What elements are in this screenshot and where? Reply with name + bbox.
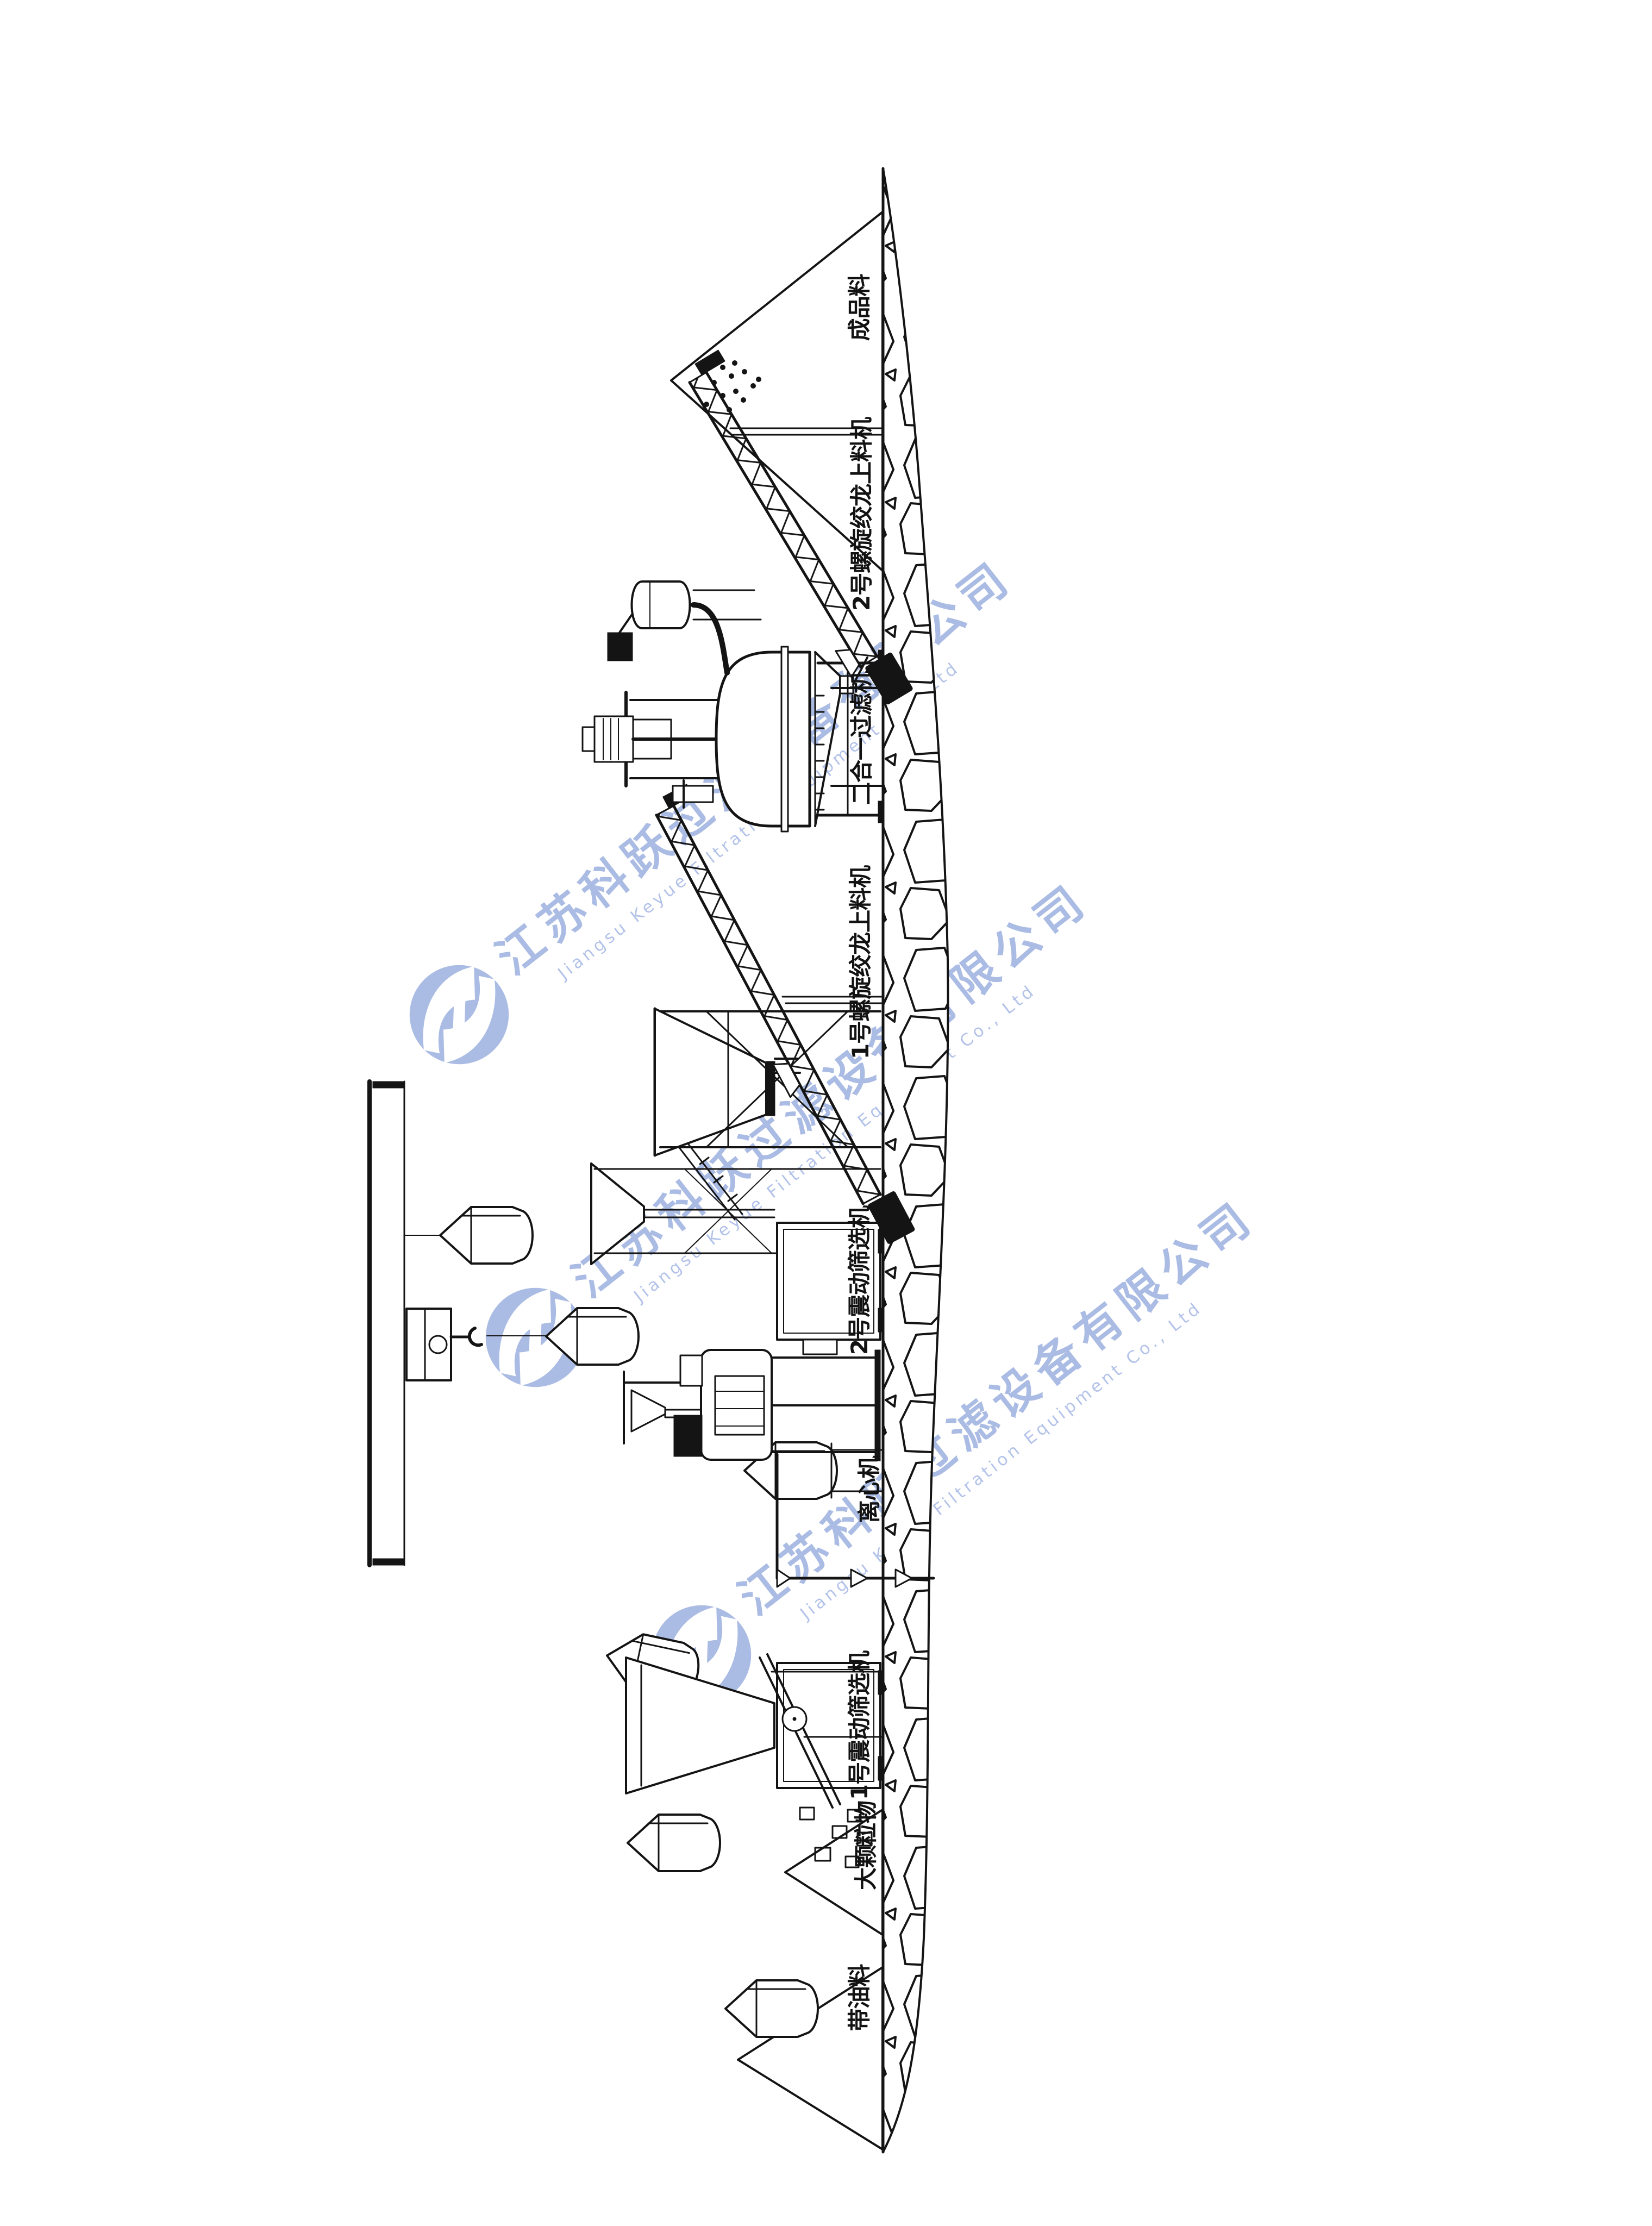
monorail-beam xyxy=(370,1081,404,1565)
vessel-shell xyxy=(716,652,810,826)
stone-band xyxy=(883,168,948,2152)
rotated-drawing-stage: 成品料 2号螺旋绞龙上料机 二合一过滤机 1号螺旋绞龙上料机 2号震动筛选机 离… xyxy=(0,0,1652,2226)
charge-bucket xyxy=(628,1815,720,1871)
centrifuge xyxy=(624,1350,880,1461)
filter-vessel xyxy=(583,647,883,831)
label-oily-pile: 带油料 xyxy=(846,1964,873,2031)
label-centrifuge: 离心机 xyxy=(856,1456,883,1523)
label-filter: 二合一过滤机 xyxy=(848,671,875,805)
label-finished-pile: 成品料 xyxy=(846,274,873,341)
screen2-vibrator-motor xyxy=(803,1340,837,1354)
vessel-flange xyxy=(781,647,788,831)
label-screen-1: 1号震动筛选机 xyxy=(846,1650,873,1800)
vacuum-pump xyxy=(608,633,633,661)
charge-bucket xyxy=(546,1308,639,1365)
hoist-hook xyxy=(470,1328,481,1345)
centrifuge-motor xyxy=(674,1415,702,1456)
electric-hoist xyxy=(406,1309,547,1380)
process-flow-drawing: 成品料 2号螺旋绞龙上料机 二合一过滤机 1号螺旋绞龙上料机 2号震动筛选机 离… xyxy=(0,0,1652,2226)
centrifuge-feed-cone xyxy=(631,1390,665,1431)
vacuum-hose xyxy=(693,605,727,673)
vessel-cone-bottom xyxy=(815,652,840,826)
label-screen-2: 2号震动筛选机 xyxy=(846,1205,873,1355)
charge-bucket xyxy=(440,1207,533,1264)
agitator-motor xyxy=(595,716,633,762)
label-screw-feeder-1: 1号螺旋绞龙上料机 xyxy=(847,865,874,1059)
vacuum-tank xyxy=(608,581,761,673)
ground-profile xyxy=(883,168,948,2152)
process-flow-screenshot: { "watermark": { "cn": "江苏科跃过滤设备有限公司", "… xyxy=(0,0,1652,2226)
screen1-feed-hopper xyxy=(626,1658,774,1793)
flow-arrow-icon xyxy=(851,1570,867,1587)
screw-feeder-1 xyxy=(638,784,922,1253)
charge-bucket xyxy=(725,1980,818,2037)
label-screw-feeder-2: 2号螺旋绞龙上料机 xyxy=(848,417,875,611)
label-coarse-pile: 大颗粒物 xyxy=(853,1801,879,1890)
filter-feed-pipe xyxy=(673,786,713,802)
vibrating-screen-1 xyxy=(626,1658,883,1793)
